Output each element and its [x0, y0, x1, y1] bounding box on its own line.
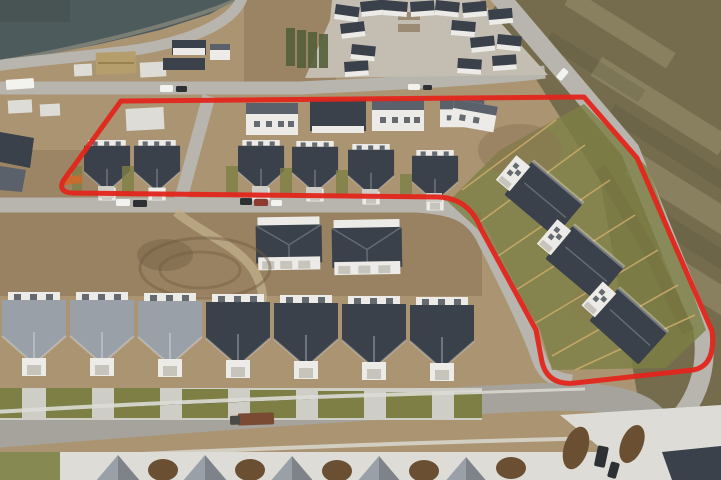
- car: [408, 84, 420, 90]
- foundation-slab: [140, 61, 167, 77]
- car: [160, 85, 173, 92]
- foundation-slab: [74, 64, 93, 77]
- excavation-pit: [137, 239, 193, 271]
- aerial-photo-canvas: [0, 0, 721, 480]
- car: [240, 198, 252, 205]
- car: [271, 200, 282, 206]
- truck: [254, 199, 268, 206]
- duplex-2: [331, 219, 402, 275]
- dark-building: [163, 58, 205, 70]
- car: [176, 86, 187, 92]
- car: [116, 199, 130, 206]
- aerial-photo: [0, 0, 721, 480]
- corner-roof: [662, 446, 721, 480]
- bottom-edge-row: [0, 452, 640, 480]
- rear-house-dark: [310, 99, 366, 133]
- foundation-slab: [125, 107, 164, 131]
- duplex-1: [255, 216, 322, 270]
- pickup: [133, 200, 147, 207]
- trailer: [6, 78, 35, 90]
- car: [423, 85, 432, 90]
